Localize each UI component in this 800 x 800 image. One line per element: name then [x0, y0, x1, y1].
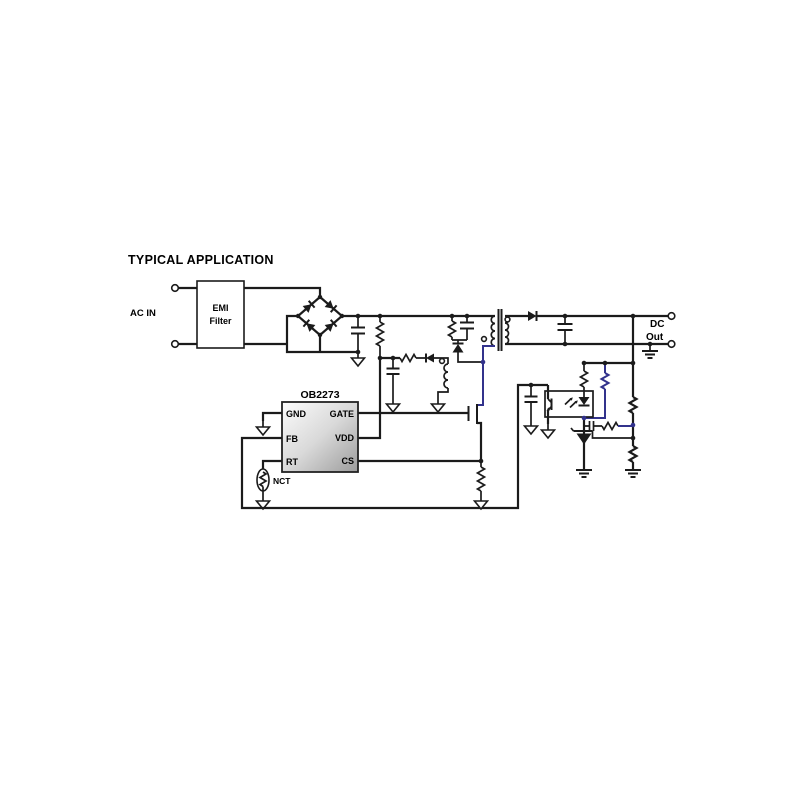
winding-phase-dot [482, 337, 487, 342]
pin-label-fb: FB [286, 434, 298, 444]
winding-phase-dot [440, 359, 445, 364]
winding-phase-dot [505, 317, 510, 322]
junction-dots [356, 314, 653, 464]
compensation-network [584, 421, 633, 431]
ac-terminal-top [172, 285, 179, 292]
current-sense [358, 461, 488, 509]
rcd-clamp-snubber [449, 316, 484, 362]
primary-winding-coil [491, 316, 495, 346]
ac-in-label: AC IN [130, 308, 156, 319]
emi-filter-label-2: Filter [209, 316, 232, 326]
aux-winding-coil [444, 364, 448, 388]
figure-title: TYPICAL APPLICATION [128, 253, 274, 267]
tl431-ref-wire [593, 431, 634, 438]
output-rectifier [505, 311, 668, 321]
dc-label-2: Out [646, 332, 664, 343]
schematic-figure: TYPICAL APPLICATION AC IN EMI Filter [0, 0, 800, 800]
ground-symbol [542, 424, 555, 438]
opto-led-icon [579, 397, 590, 405]
aux-supply [380, 354, 448, 413]
transformer-core [499, 309, 502, 351]
bridge-rectifier [296, 295, 344, 352]
aux-rectifier-diode-icon [426, 354, 434, 363]
nct-thermistor: NCT [257, 469, 292, 509]
earth-ground-symbol [642, 351, 658, 358]
nct-label: NCT [273, 476, 291, 486]
schematic-canvas: TYPICAL APPLICATION AC IN EMI Filter [0, 0, 800, 800]
dc-terminal-minus [668, 341, 675, 348]
emi-filter-label-1: EMI [212, 303, 228, 313]
transformer [477, 309, 510, 405]
ic-ob2273: OB2273 GND FB RT GATE VDD CS [257, 389, 359, 472]
output-capacitor [558, 316, 573, 344]
dc-label-1: DC [650, 319, 664, 330]
bulk-capacitor [351, 316, 365, 366]
pin-label-gate: GATE [330, 409, 354, 419]
earth-ground-symbol [625, 470, 641, 477]
fb-filter-capacitor [525, 385, 538, 434]
dc-terminal-plus [668, 313, 675, 320]
ground-symbol [525, 420, 538, 434]
pin-label-rt: RT [286, 457, 298, 467]
pin-label-gnd: GND [286, 409, 307, 419]
earth-ground-symbol [576, 470, 592, 477]
emi-filter-box [197, 281, 244, 348]
ac-terminal-bottom [172, 341, 179, 348]
ground-symbol [387, 398, 400, 412]
ic-part-number: OB2273 [300, 389, 339, 401]
emi-filter: EMI Filter [197, 281, 358, 352]
power-mosfet [358, 404, 481, 461]
ac-input: AC IN [130, 285, 197, 348]
ground-symbol [257, 421, 270, 435]
pin-label-vdd: VDD [335, 433, 355, 443]
primary-drain-wire [477, 346, 495, 405]
ground-symbol [432, 398, 445, 412]
pin-label-cs: CS [341, 456, 354, 466]
